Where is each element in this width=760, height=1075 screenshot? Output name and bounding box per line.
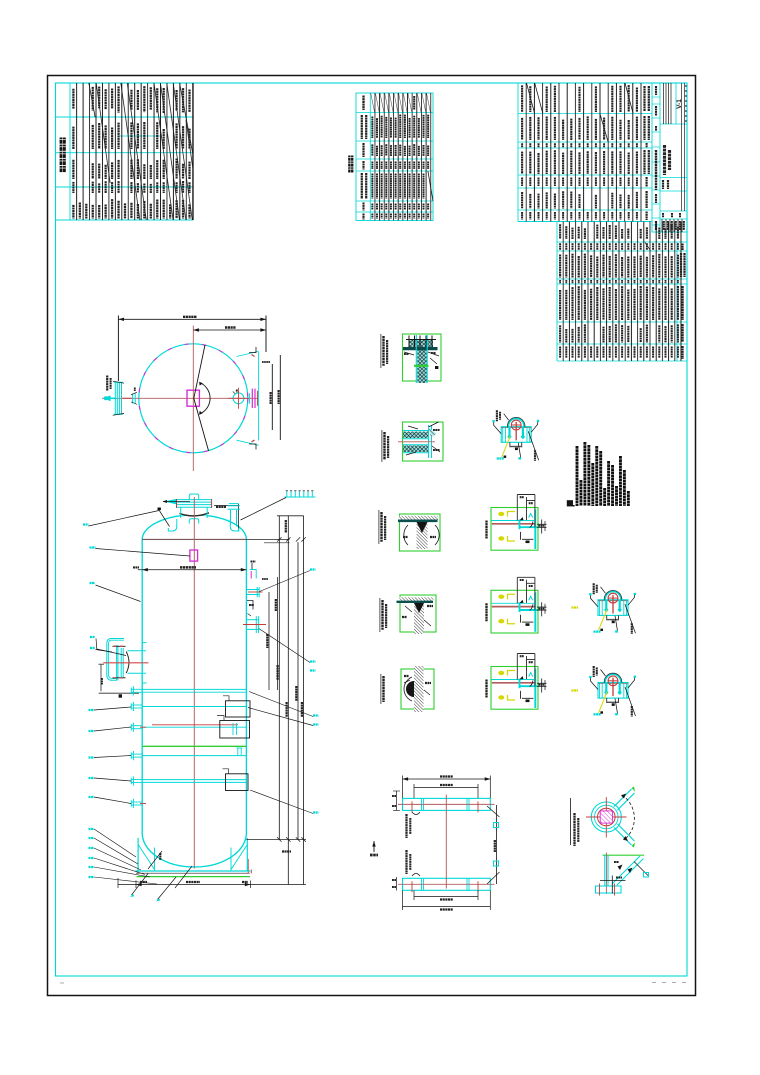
svg-text:V-1: V-1 [676,99,683,109]
